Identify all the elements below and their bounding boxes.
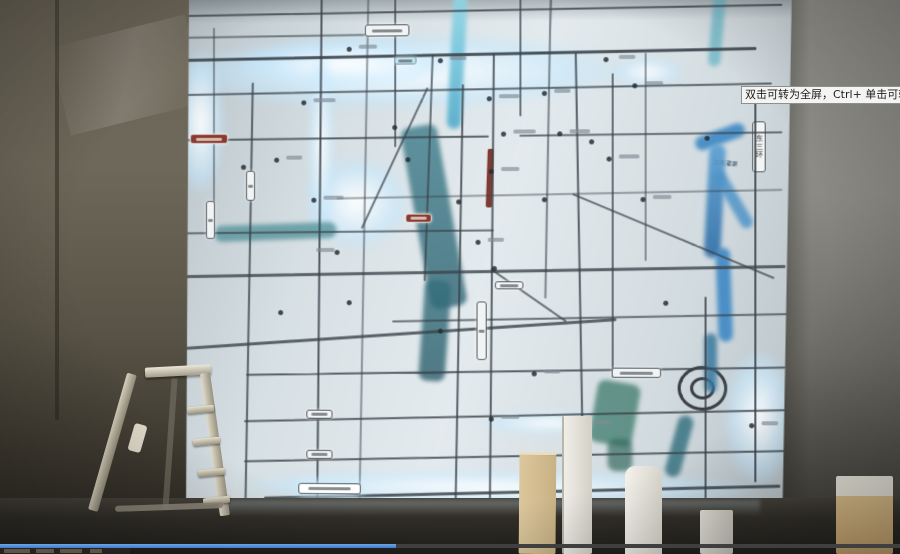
road-name-badge bbox=[477, 301, 487, 360]
illegible-map-label bbox=[501, 415, 519, 419]
progress-played bbox=[0, 544, 396, 548]
poi-marker-icon bbox=[347, 300, 352, 305]
road-name-badge bbox=[246, 171, 255, 201]
poi-marker-icon bbox=[542, 197, 547, 202]
map-road bbox=[186, 135, 489, 141]
map-top-shadow bbox=[186, 0, 798, 24]
map-river bbox=[715, 248, 733, 342]
map-road bbox=[705, 297, 707, 516]
poi-marker-icon bbox=[241, 165, 246, 170]
map-river bbox=[704, 144, 727, 259]
illegible-map-label bbox=[323, 196, 343, 200]
foreground-pillar bbox=[562, 416, 592, 554]
poi-marker-icon bbox=[489, 417, 494, 422]
video-progress-bar[interactable] bbox=[0, 544, 900, 548]
poi-marker-icon bbox=[311, 198, 316, 203]
illegible-map-label bbox=[286, 156, 302, 160]
illegible-map-label bbox=[513, 129, 535, 133]
poi-marker-icon bbox=[347, 47, 352, 52]
road-name-badge bbox=[190, 134, 228, 144]
illegible-map-label bbox=[316, 248, 334, 252]
road-name-badge bbox=[306, 410, 332, 419]
map-road bbox=[244, 83, 254, 514]
road-name-badge bbox=[298, 483, 361, 495]
ladder-foot-bar bbox=[115, 502, 223, 512]
poi-marker-icon bbox=[749, 423, 754, 428]
poi-marker-icon bbox=[557, 131, 562, 136]
road-name-badge bbox=[394, 56, 416, 64]
poi-marker-icon bbox=[489, 169, 494, 174]
map-road-diagonal bbox=[490, 268, 567, 322]
foreground-pillar bbox=[836, 476, 893, 554]
road-name-badge bbox=[365, 24, 410, 36]
road-name-badge bbox=[206, 201, 215, 239]
illegible-map-label bbox=[499, 94, 519, 98]
poi-marker-icon bbox=[487, 96, 492, 101]
map-river bbox=[663, 414, 695, 479]
road-name-badge bbox=[495, 281, 524, 289]
foreground-pillar bbox=[625, 466, 662, 554]
map-road bbox=[612, 73, 614, 377]
poi-marker-icon bbox=[663, 301, 668, 306]
illegible-map-label bbox=[619, 55, 635, 59]
illegible-map-label bbox=[501, 167, 519, 171]
poi-marker-icon bbox=[705, 136, 710, 141]
poi-marker-icon bbox=[632, 83, 637, 88]
poi-marker-icon bbox=[603, 57, 608, 62]
poi-marker-icon bbox=[405, 157, 410, 162]
step-ladder bbox=[105, 358, 235, 518]
bottom-edge-artifact bbox=[0, 548, 130, 554]
map-road bbox=[186, 265, 785, 278]
illegible-map-label bbox=[544, 369, 560, 373]
map-road bbox=[186, 318, 616, 350]
map-backlight-glow bbox=[725, 352, 791, 485]
road-name-badge bbox=[405, 214, 431, 223]
poi-marker-icon bbox=[589, 139, 594, 144]
illegible-map-label bbox=[450, 56, 466, 60]
poi-marker-icon bbox=[542, 91, 547, 96]
floor-reflection bbox=[220, 500, 760, 516]
illuminated-map-board: 东三环 沈抚灌渠 bbox=[186, 0, 798, 524]
map-road bbox=[519, 0, 521, 116]
poi-marker-icon bbox=[532, 371, 537, 376]
poi-marker-icon bbox=[501, 132, 506, 137]
poi-marker-icon bbox=[607, 157, 612, 162]
poi-marker-icon bbox=[278, 310, 283, 315]
poi-marker-icon bbox=[301, 100, 306, 105]
map-road bbox=[754, 93, 756, 483]
illegible-map-label bbox=[554, 89, 570, 93]
poi-marker-icon bbox=[476, 240, 481, 245]
poi-marker-icon bbox=[438, 58, 443, 63]
poi-marker-icon bbox=[492, 266, 497, 271]
poi-marker-icon bbox=[438, 329, 443, 334]
poi-marker-icon bbox=[640, 197, 645, 202]
fullscreen-tooltip: 双击可转为全屏，Ctrl+ 单击可转为 bbox=[741, 86, 900, 104]
illegible-map-label bbox=[762, 421, 779, 425]
video-frame[interactable]: 东三环 沈抚灌渠 双击可转为全屏，Ctrl+ 单击可转为 bbox=[0, 0, 900, 554]
road-name-badge bbox=[306, 450, 332, 459]
foreground-pillar bbox=[519, 452, 557, 554]
illegible-map-label bbox=[570, 129, 591, 133]
illegible-map-label bbox=[313, 98, 335, 102]
illegible-map-label bbox=[619, 154, 640, 158]
poi-marker-icon bbox=[274, 158, 279, 163]
illegible-map-label bbox=[359, 45, 377, 49]
illegible-map-label bbox=[593, 420, 612, 424]
illegible-map-label bbox=[488, 238, 504, 242]
poi-marker-icon bbox=[456, 199, 461, 204]
illegible-map-label bbox=[645, 81, 664, 85]
illegible-map-label bbox=[653, 195, 672, 199]
poi-marker-icon bbox=[335, 250, 340, 255]
poi-marker-icon bbox=[392, 125, 397, 130]
road-name-badge bbox=[612, 368, 661, 378]
